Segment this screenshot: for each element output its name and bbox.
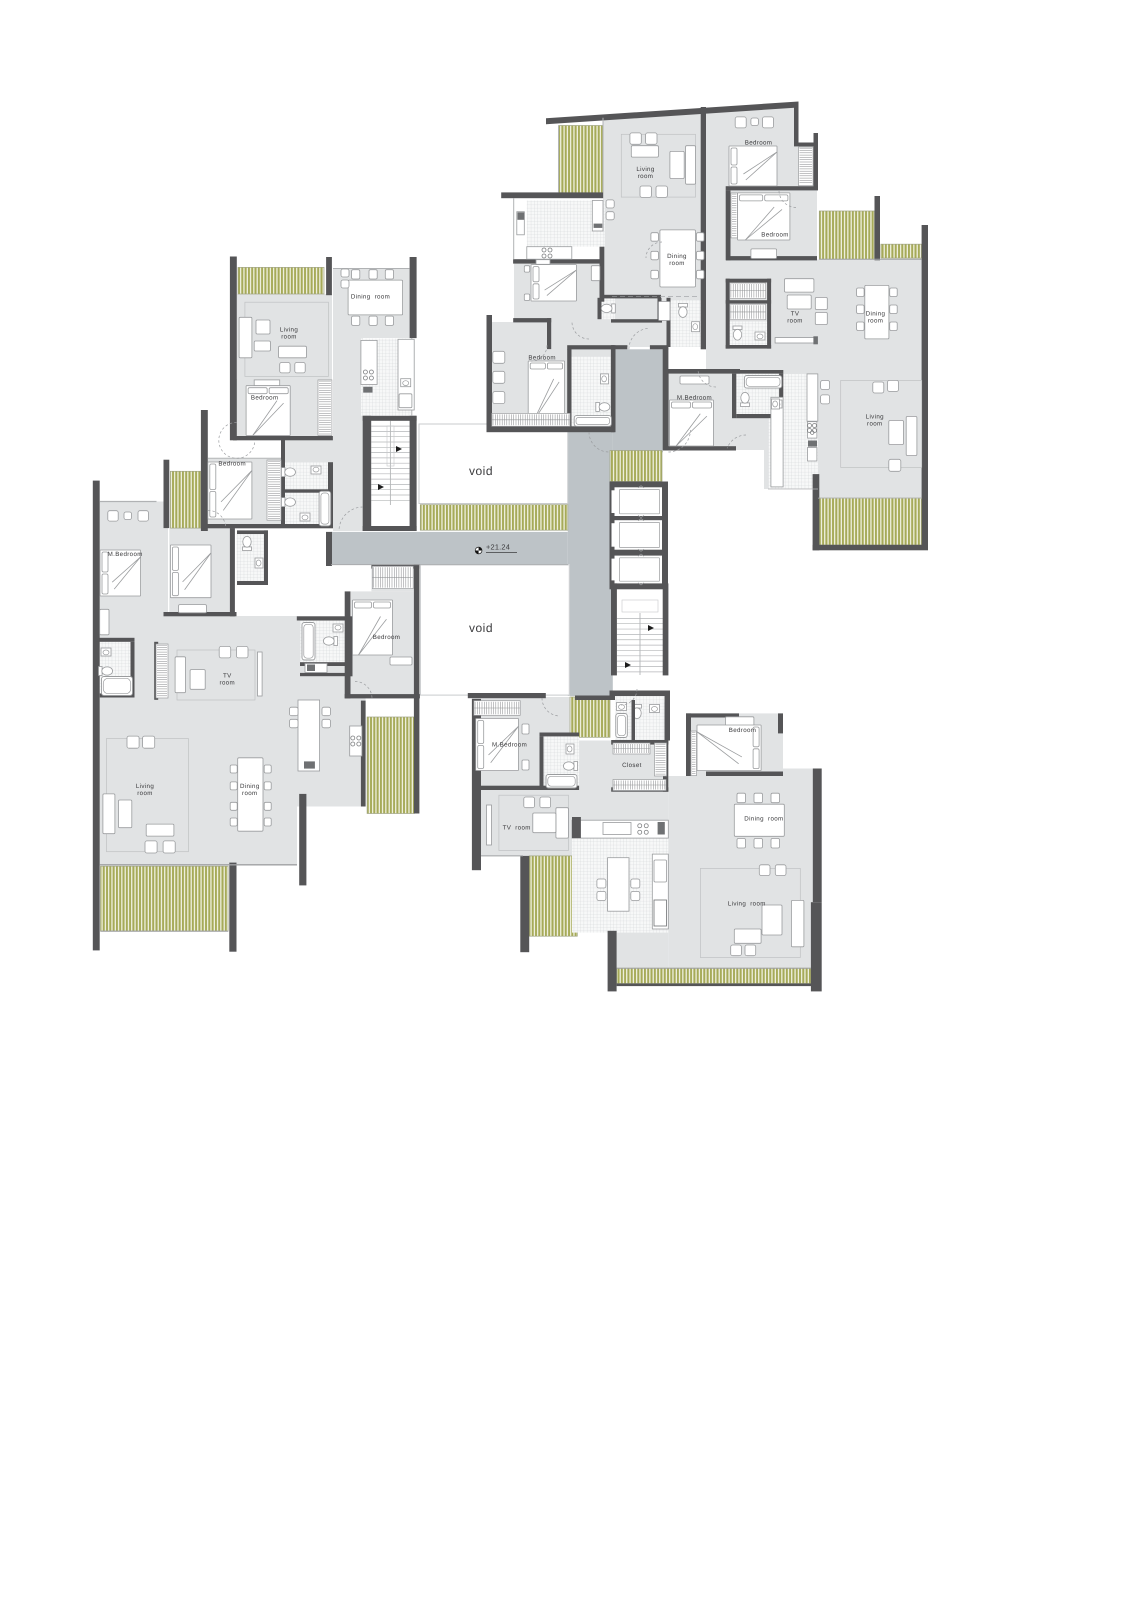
svg-text:Bedroom: Bedroom [251, 395, 279, 402]
svg-text:Dining room: Dining room [351, 294, 390, 301]
svg-text:Bedroom: Bedroom [373, 634, 401, 641]
svg-text:Dining room: Dining room [744, 816, 783, 823]
svg-text:room: room [868, 318, 884, 325]
svg-text:Bedroom: Bedroom [761, 231, 789, 238]
svg-text:room: room [638, 173, 654, 180]
svg-text:Dining: Dining [667, 253, 687, 260]
svg-text:room: room [242, 790, 258, 797]
svg-text:room: room [867, 420, 883, 427]
svg-text:TV: TV [223, 673, 232, 680]
svg-text:Living: Living [280, 327, 298, 334]
svg-text:Dining: Dining [240, 783, 260, 790]
svg-text:Living: Living [866, 413, 884, 420]
svg-text:Bedroom: Bedroom [218, 461, 246, 468]
svg-text:M.Bedroom: M.Bedroom [492, 741, 527, 748]
svg-text:room: room [669, 260, 685, 267]
svg-text:room: room [281, 334, 297, 341]
svg-text:M.Bedroom: M.Bedroom [108, 551, 143, 558]
svg-text:Bedroom: Bedroom [528, 354, 556, 361]
svg-text:TV room: TV room [503, 825, 531, 832]
svg-text:M.Bedroom: M.Bedroom [677, 395, 712, 402]
svg-text:TV: TV [791, 311, 800, 318]
svg-text:room: room [220, 680, 236, 687]
svg-text:void: void [469, 464, 493, 478]
svg-text:Living: Living [636, 166, 654, 173]
svg-text:Bedroom: Bedroom [745, 139, 773, 146]
svg-text:Living room: Living room [728, 901, 766, 908]
svg-text:Living: Living [136, 783, 154, 790]
svg-text:room: room [137, 790, 153, 797]
svg-text:Dining: Dining [866, 311, 886, 318]
svg-text:void: void [469, 621, 493, 635]
svg-text:room: room [787, 318, 803, 325]
svg-text:+21.24: +21.24 [486, 543, 510, 552]
svg-text:Closet: Closet [622, 762, 642, 769]
svg-text:Bedroom: Bedroom [729, 727, 757, 734]
